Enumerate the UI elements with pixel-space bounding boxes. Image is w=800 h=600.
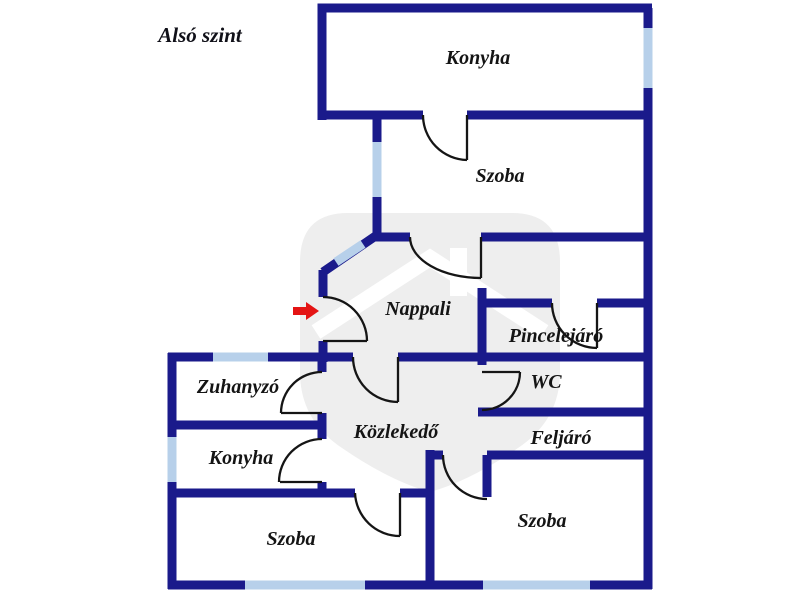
room-label-szoba-upper: Szoba — [476, 165, 525, 187]
room-label-pincelejaro: Pincelejáró — [508, 325, 603, 347]
door-szoba-bottom-left — [355, 493, 400, 536]
room-label-konyha-left: Konyha — [208, 447, 273, 469]
floorplan-page: Alsó szint Konyha Szoba Nappali Pincelej… — [0, 0, 800, 600]
room-label-nappali: Nappali — [384, 298, 451, 320]
room-label-szoba-bottom-right: Szoba — [518, 510, 567, 532]
room-label-wc: WC — [530, 371, 562, 393]
room-label-feljaro: Feljáró — [529, 427, 591, 449]
room-label-kozlekedo: Közlekedő — [353, 421, 440, 443]
door-konyha-left — [279, 439, 322, 482]
page-title: Alsó szint — [156, 23, 243, 47]
door-konyha-top — [423, 115, 467, 160]
room-label-konyha-top: Konyha — [445, 47, 510, 69]
floorplan-canvas: Alsó szint Konyha Szoba Nappali Pincelej… — [0, 0, 800, 600]
room-label-zuhanyzo: Zuhanyzó — [196, 376, 279, 398]
room-label-szoba-bottom-left: Szoba — [267, 528, 316, 550]
